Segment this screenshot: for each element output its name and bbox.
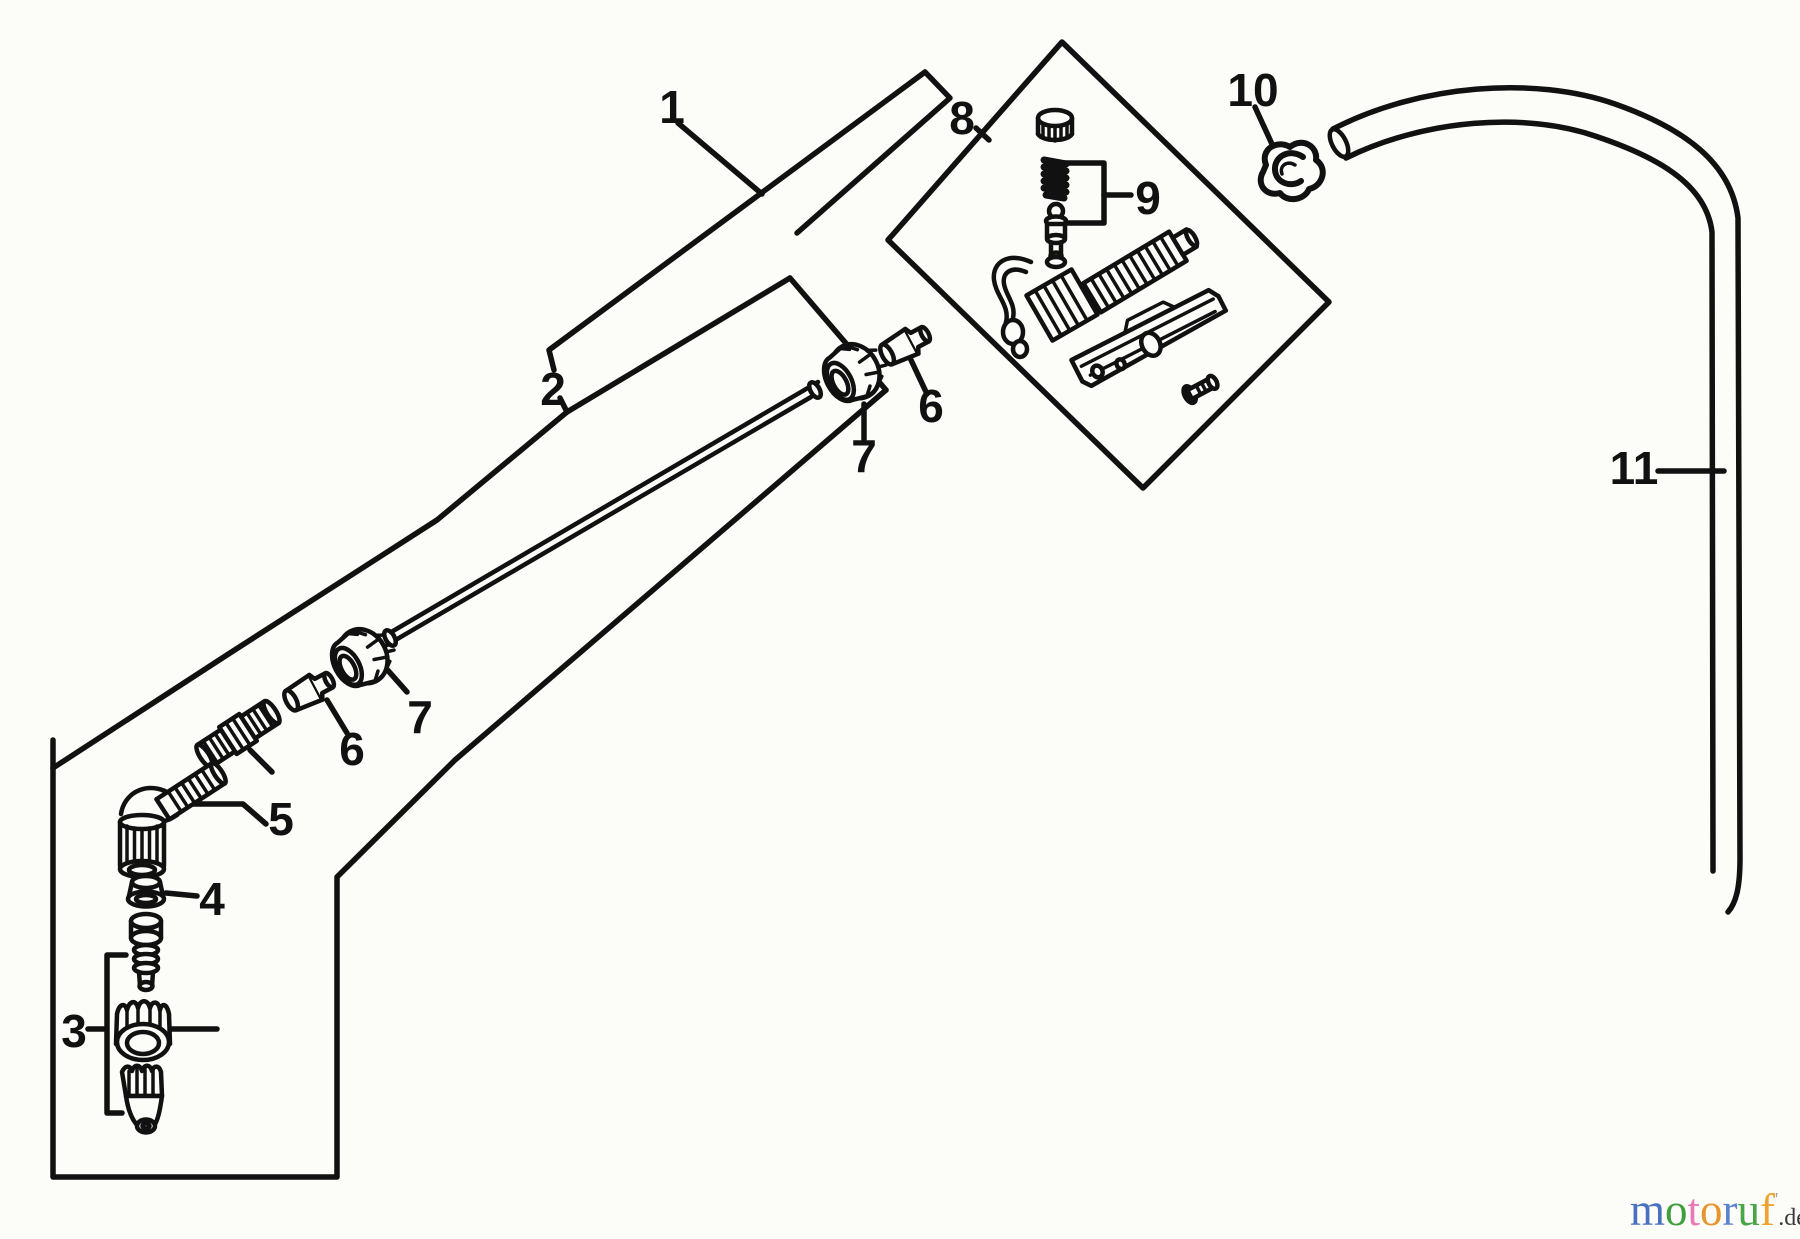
valve-small-parts: [1046, 204, 1066, 260]
part-label-7: 7: [407, 691, 433, 743]
screw: [1181, 373, 1220, 405]
part-label-10: 10: [1227, 64, 1278, 116]
hose-adapter-upper: [876, 320, 935, 369]
discharge-hose: [1326, 88, 1740, 912]
part-label-4: 4: [199, 873, 225, 925]
part-label-6: 6: [339, 723, 365, 775]
part-label-1: 1: [659, 81, 685, 133]
part-label-7: 7: [851, 430, 877, 482]
wand-assembly-outline: [53, 72, 950, 768]
part-label-2: 2: [540, 363, 566, 415]
watermark-letter: f: [1760, 1188, 1775, 1233]
hose-clip: [1261, 143, 1323, 199]
ferrule: [128, 876, 164, 907]
retainer-nut: [116, 1001, 170, 1060]
elbow-fitting: [120, 761, 228, 877]
pump-cap: [1038, 110, 1072, 141]
parts-diagram: 123456767891011 motoruf'.de: [0, 0, 1800, 1239]
part-label-3: 3: [61, 1005, 87, 1057]
watermark-letter: o: [1700, 1188, 1723, 1233]
exploded-view-drawing: 123456767891011: [0, 0, 1800, 1239]
watermark-mark: ': [1775, 1190, 1778, 1208]
watermark-letter: u: [1738, 1188, 1761, 1233]
watermark-suffix: .de: [1778, 1206, 1800, 1230]
watermark-letter: o: [1665, 1188, 1688, 1233]
watermark-logo: motoruf'.de: [1630, 1188, 1800, 1233]
part-number-labels: 123456767891011: [61, 64, 1658, 1057]
watermark-letter: t: [1688, 1188, 1701, 1233]
part-label-6: 6: [918, 380, 944, 432]
bellows: [1083, 222, 1203, 313]
pipe-nipple: [192, 696, 284, 771]
pump-spring: [1044, 160, 1066, 198]
part-label-8: 8: [949, 92, 975, 144]
watermark-letter: r: [1723, 1188, 1738, 1233]
part-label-11: 11: [1610, 442, 1659, 494]
part-label-5: 5: [268, 793, 294, 845]
nozzle-tip: [122, 1066, 162, 1133]
watermark-letter: m: [1630, 1188, 1665, 1233]
part-label-9: 9: [1135, 172, 1161, 224]
check-valve: [131, 914, 161, 990]
